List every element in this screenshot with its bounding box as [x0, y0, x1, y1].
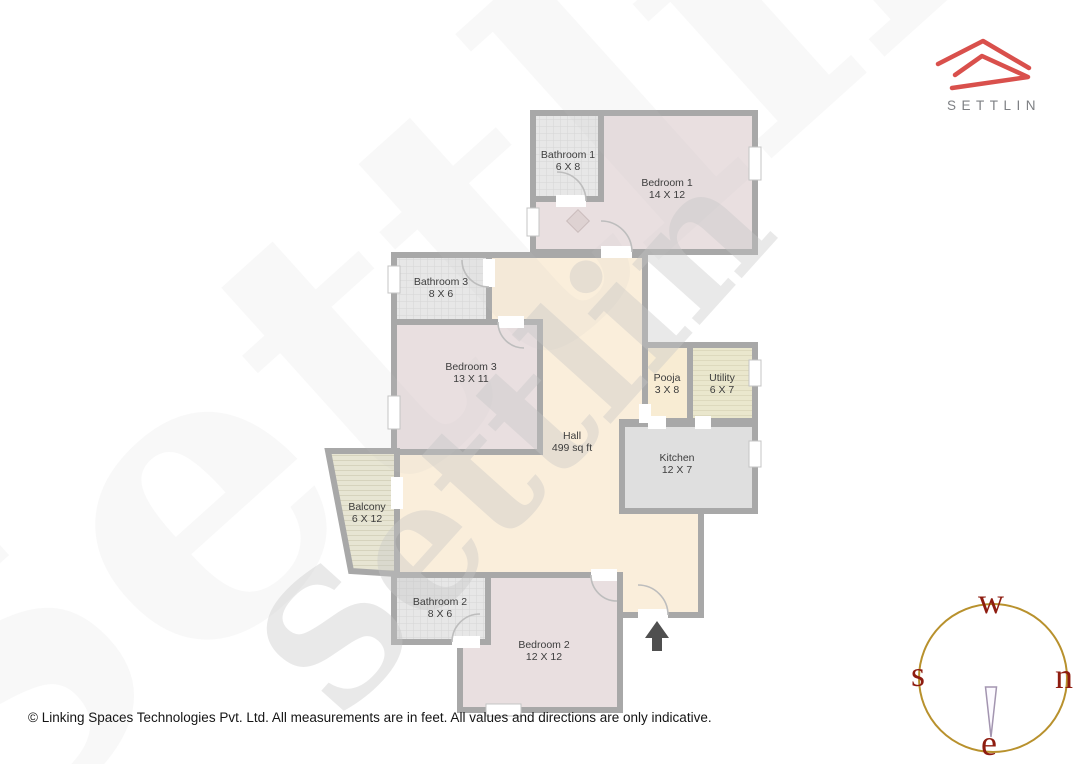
compass: w s n e	[911, 581, 1073, 763]
door-opening	[591, 569, 617, 581]
logo-text: SETTLIN	[947, 98, 1041, 113]
door-opening	[391, 477, 403, 509]
door-opening	[452, 636, 480, 648]
footer-disclaimer: © Linking Spaces Technologies Pvt. Ltd. …	[28, 710, 1028, 725]
window-opening	[527, 208, 539, 236]
door-opening	[601, 246, 632, 258]
room-label-bedroom-2-dims: 12 X 12	[526, 651, 562, 663]
door-opening	[498, 316, 524, 328]
room-label-kitchen-name: Kitchen	[659, 452, 694, 464]
room-label-bedroom-3-name: Bedroom 3	[445, 361, 497, 373]
room-label-bathroom-2-dims: 8 X 6	[428, 608, 453, 620]
room-label-utility-dims: 6 X 7	[710, 384, 735, 396]
room-label-bedroom-2-name: Bedroom 2	[518, 639, 570, 651]
room-label-balcony-dims: 6 X 12	[352, 513, 383, 525]
room-label-bathroom-2-name: Bathroom 2	[413, 596, 467, 608]
compass-letter-west: w	[978, 581, 1004, 621]
door-opening	[638, 609, 668, 621]
window-opening	[749, 441, 761, 467]
room-label-balcony-name: Balcony	[348, 501, 386, 513]
room-label-kitchen-dims: 12 X 7	[662, 464, 693, 476]
room-label-pooja-dims: 3 X 8	[655, 384, 680, 396]
room-label-bathroom-1-name: Bathroom 1	[541, 149, 595, 161]
room-label-pooja-name: Pooja	[654, 372, 681, 384]
door-opening	[695, 416, 711, 429]
floorplan-canvas: Settlin Settlin Bathroom 1 6 X	[0, 0, 1080, 764]
window-opening	[388, 396, 400, 429]
entrance-arrow-icon	[645, 621, 669, 651]
room-label-bedroom-1-dims: 14 X 12	[649, 189, 685, 201]
compass-letter-east: e	[981, 723, 997, 763]
room-label-hall-name: Hall	[563, 430, 581, 442]
room-label-utility-name: Utility	[709, 372, 735, 384]
window-opening	[749, 147, 761, 180]
room-label-bathroom-1-dims: 6 X 8	[556, 161, 581, 173]
room-label-bathroom-3-name: Bathroom 3	[414, 276, 468, 288]
room-label-bathroom-3-dims: 8 X 6	[429, 288, 454, 300]
room-label-bedroom-3-dims: 13 X 11	[453, 373, 489, 385]
compass-letter-north: n	[1055, 656, 1073, 696]
door-opening	[556, 195, 586, 207]
floorplan-page: Settlin Settlin Bathroom 1 6 X	[0, 0, 1080, 764]
window-opening	[749, 360, 761, 386]
window-opening	[388, 266, 400, 293]
door-opening	[483, 259, 495, 287]
compass-letter-south: s	[911, 654, 925, 694]
room-label-bedroom-1-name: Bedroom 1	[641, 177, 693, 189]
room-label-hall-dims: 499 sq ft	[552, 442, 592, 454]
door-opening	[648, 416, 666, 429]
